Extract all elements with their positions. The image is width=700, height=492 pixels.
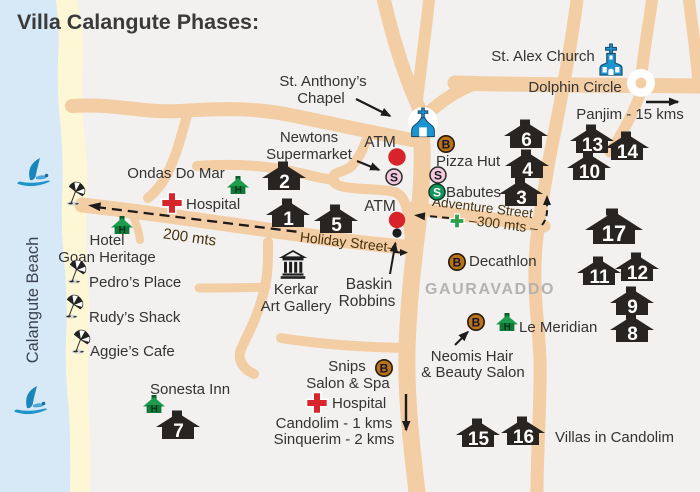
svg-text:ATM: ATM [364,134,396,151]
svg-text:Decathlon: Decathlon [469,253,537,270]
svg-text:B: B [453,256,462,270]
svg-text:4: 4 [522,160,533,181]
svg-text:Kerkar: Kerkar [274,281,318,298]
svg-text:16: 16 [513,427,534,448]
svg-text:Aggie’s Cafe: Aggie’s Cafe [90,343,175,360]
svg-text:11: 11 [589,267,610,288]
svg-text:6: 6 [521,130,532,151]
svg-text:Villas in Candolim: Villas in Candolim [555,429,674,446]
svg-text:& Beauty Salon: & Beauty Salon [421,364,524,381]
svg-text:Robbins: Robbins [339,293,396,310]
svg-text:13: 13 [582,135,603,156]
svg-text:2: 2 [279,172,290,193]
svg-text:Baskin: Baskin [346,276,393,293]
svg-text:Pedro’s Place: Pedro’s Place [89,274,181,291]
svg-text:GAURAVADDO: GAURAVADDO [425,281,555,298]
svg-text:17: 17 [602,221,626,246]
svg-text:Sinquerim - 2 kms: Sinquerim - 2 kms [274,431,395,448]
svg-text:Chapel: Chapel [297,90,345,107]
svg-text:Art Gallery: Art Gallery [261,298,332,315]
svg-text:B: B [472,316,481,330]
svg-text:S: S [434,169,442,183]
svg-text:7: 7 [173,421,184,442]
svg-text:St. Anthony’s: St. Anthony’s [279,73,366,90]
svg-text:Hospital: Hospital [186,196,240,213]
svg-text:Ondas Do Mar: Ondas Do Mar [127,165,225,182]
svg-text:Salon & Spa: Salon & Spa [306,375,390,392]
svg-text:3: 3 [516,188,527,209]
svg-text:St. Alex Church: St. Alex Church [491,48,594,65]
svg-text:12: 12 [627,263,648,284]
svg-text:Neomis Hair: Neomis Hair [431,348,514,365]
svg-text:Newtons: Newtons [280,129,338,146]
svg-text:10: 10 [579,162,600,183]
svg-text:Panjim - 15 kms: Panjim - 15 kms [576,106,684,123]
svg-text:Dolphin Circle: Dolphin Circle [528,79,621,96]
svg-text:14: 14 [617,142,639,163]
svg-text:Snips: Snips [328,358,366,375]
svg-text:Sonesta Inn: Sonesta Inn [150,381,230,398]
svg-text:Villa Calangute Phases:: Villa Calangute Phases: [17,10,259,34]
svg-text:Le Meridian: Le Meridian [519,319,597,336]
svg-text:Hospital: Hospital [332,395,386,412]
svg-text:Candolim - 1 kms: Candolim - 1 kms [276,415,393,432]
svg-text:B: B [442,138,451,152]
svg-text:Babutes: Babutes [446,184,501,201]
svg-text:5: 5 [331,215,342,236]
svg-text:1: 1 [283,209,294,230]
svg-text:S: S [390,171,398,185]
svg-text:Rudy’s Shack: Rudy’s Shack [89,309,181,326]
svg-text:8: 8 [627,324,638,345]
svg-text:B: B [380,362,389,376]
svg-text:ATM: ATM [364,198,396,215]
svg-text:S: S [433,186,441,200]
svg-text:15: 15 [468,429,490,450]
svg-text:Calangute Beach: Calangute Beach [24,237,42,364]
svg-text:Hotel: Hotel [89,232,124,249]
svg-text:Supermarket: Supermarket [266,146,353,163]
svg-text:Pizza Hut: Pizza Hut [436,153,501,170]
